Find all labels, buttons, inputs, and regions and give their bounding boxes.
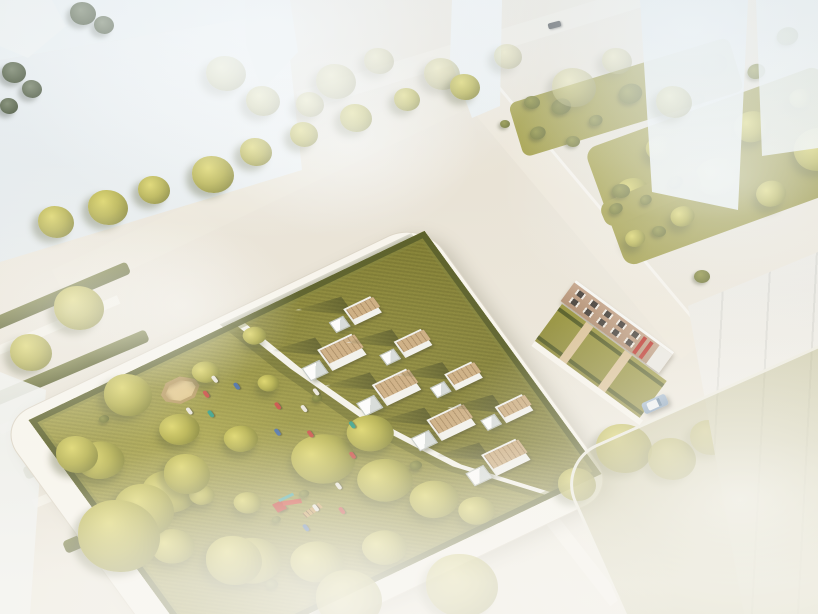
roadside-bush [500,120,510,128]
person-figure [274,402,282,410]
pine-tree [2,62,26,83]
street-tree [240,138,272,166]
playground-slide [282,498,302,505]
pine-tree [22,80,42,98]
street-tree [138,176,170,204]
street-tree [38,206,74,238]
tree [552,68,596,107]
tree [104,374,152,416]
park-tree [753,176,790,210]
tree [246,86,280,116]
lawn-bush [97,414,111,425]
street-tree [450,74,480,100]
tree [494,44,522,69]
lawn-tree [239,323,270,348]
pine-tree [70,2,96,25]
person-figure [202,390,210,398]
person-figure [338,506,346,514]
pine-tree [0,98,18,114]
island-bush [638,193,653,207]
tree [316,64,356,99]
park-bush [616,81,645,107]
person-figure [300,404,308,412]
lawn-tree [218,420,263,457]
street-tree [340,104,372,132]
roadside-bush [524,96,540,109]
person-figure [207,410,215,418]
entrance-path [559,322,593,364]
tree [54,286,104,330]
lawn-tree [254,371,282,394]
person-figure [233,382,241,390]
person-figure [334,482,342,490]
person-figure [302,524,310,532]
tree [206,536,262,585]
entrance-path [598,350,632,392]
lawn-tree [452,491,500,530]
park-bush [528,125,547,142]
tree [656,86,692,118]
lawn-tree [229,488,266,518]
park-tree [668,203,698,230]
tree [78,500,160,572]
roadside-bush [694,270,710,283]
tree [206,56,246,91]
pine-tree [94,16,114,34]
street-tree [88,190,128,225]
tree [56,436,98,473]
park-tree [623,227,648,250]
architectural-rendering [0,0,818,614]
tree [10,334,52,371]
lawn-tree [355,524,415,572]
lawn-tree [153,408,207,451]
island-bush [607,201,624,217]
tree [164,454,210,494]
tree [602,48,632,74]
street-tree [394,88,420,111]
street-tree [290,122,318,147]
person-figure [273,428,281,436]
street-tree [192,156,234,193]
tree [364,48,394,74]
tree [296,92,324,117]
park-bush [587,113,604,128]
